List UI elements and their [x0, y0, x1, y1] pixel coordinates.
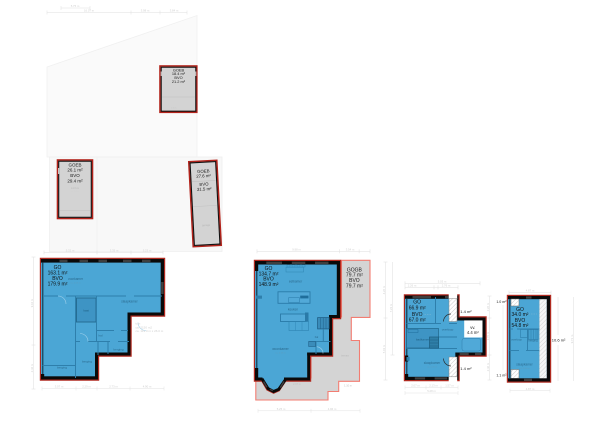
svg-text:1.1 m²: 1.1 m²: [496, 374, 507, 378]
svg-text:66.9 m²: 66.9 m²: [409, 305, 426, 311]
svg-text:3.07 m: 3.07 m: [55, 385, 64, 389]
svg-text:10.6 m²: 10.6 m²: [552, 338, 566, 343]
svg-text:tuinhuis: tuinhuis: [71, 187, 80, 190]
svg-text:1.57 m: 1.57 m: [445, 384, 454, 388]
svg-text:9.98 m: 9.98 m: [292, 247, 301, 251]
svg-text:overloop: overloop: [511, 338, 522, 342]
svg-text:79.7 m²: 79.7 m²: [346, 284, 363, 290]
svg-text:2.13 m: 2.13 m: [429, 384, 438, 388]
svg-text:4.87 m: 4.87 m: [526, 289, 535, 293]
svg-text:2.07 m: 2.07 m: [293, 382, 301, 386]
svg-text:ca. 6.0 m: ca. 6.0 m: [71, 191, 80, 193]
svg-text:2.46 m: 2.46 m: [486, 362, 490, 371]
svg-text:badkamer: badkamer: [416, 338, 429, 342]
svg-text:5.32 m: 5.32 m: [66, 249, 75, 253]
svg-text:slaapkamer: slaapkamer: [516, 363, 533, 367]
svg-text:5.75 m: 5.75 m: [71, 4, 80, 8]
svg-text:9.73 m: 9.73 m: [570, 334, 574, 343]
svg-text:eetkamer: eetkamer: [289, 280, 303, 284]
svg-text:31.5 m²: 31.5 m²: [197, 186, 212, 192]
svg-text:overloop: overloop: [442, 328, 454, 332]
svg-text:terras: terras: [341, 354, 349, 358]
svg-text:1.4 m²: 1.4 m²: [460, 309, 472, 314]
svg-text:2.73 m: 2.73 m: [109, 385, 118, 389]
svg-text:54.8 m²: 54.8 m²: [512, 323, 529, 329]
svg-text:slaapkamer: slaapkamer: [121, 300, 138, 304]
svg-text:hal: hal: [98, 334, 102, 338]
svg-text:ca. 119.0 m x 26.0 m: ca. 119.0 m x 26.0 m: [136, 329, 164, 333]
svg-text:berging: berging: [113, 348, 123, 352]
svg-text:2.07 m: 2.07 m: [411, 384, 420, 388]
svg-text:ca. 5.25 m: ca. 5.25 m: [275, 353, 285, 355]
svg-text:2.26 m: 2.26 m: [486, 302, 490, 311]
svg-text:voorkamer: voorkamer: [68, 277, 84, 281]
svg-text:3.98 m: 3.98 m: [141, 9, 150, 13]
svg-text:2.29 m: 2.29 m: [82, 385, 91, 389]
svg-text:ca. 4.20 m: ca. 4.20 m: [427, 367, 437, 369]
svg-text:kast: kast: [83, 309, 89, 313]
svg-text:3.84 m: 3.84 m: [170, 9, 179, 13]
svg-text:2.42 m: 2.42 m: [30, 363, 34, 372]
svg-text:5.25 m: 5.25 m: [277, 407, 286, 411]
svg-text:3.23 m: 3.23 m: [143, 249, 152, 253]
svg-text:1.10 m: 1.10 m: [344, 384, 352, 388]
svg-text:148.9 m²: 148.9 m²: [259, 282, 279, 288]
svg-text:3.35 m: 3.35 m: [110, 249, 119, 253]
svg-text:hal: hal: [315, 335, 319, 339]
svg-text:BVO: BVO: [70, 173, 80, 178]
svg-text:2.26 m: 2.26 m: [408, 284, 417, 288]
svg-text:slaapkamer: slaapkamer: [424, 361, 441, 365]
svg-text:29.4 m²: 29.4 m²: [67, 179, 83, 184]
svg-text:4.96 m: 4.96 m: [328, 407, 337, 411]
svg-text:16.07 m: 16.07 m: [84, 9, 95, 13]
svg-text:berging: berging: [57, 366, 67, 370]
svg-text:67.0 m²: 67.0 m²: [409, 318, 426, 324]
svg-text:2.76 m: 2.76 m: [442, 284, 451, 288]
svg-text:4.90 m: 4.90 m: [143, 385, 152, 389]
svg-text:7.23 m: 7.23 m: [389, 303, 393, 312]
svg-text:berging: berging: [528, 339, 538, 343]
svg-text:keuken: keuken: [288, 308, 299, 312]
svg-text:5.03 m: 5.03 m: [382, 344, 386, 353]
svg-text:2.2 m: 2.2 m: [171, 108, 177, 110]
svg-text:ca. 3.60 m: ca. 3.60 m: [519, 368, 529, 370]
svg-text:1.4 m²: 1.4 m²: [460, 366, 472, 371]
svg-text:9.62 m: 9.62 m: [30, 298, 34, 307]
svg-text:27.6 m²: 27.6 m²: [196, 173, 211, 179]
svg-text:3.70 m: 3.70 m: [486, 331, 490, 340]
svg-text:21.2 m²: 21.2 m²: [172, 79, 186, 84]
svg-text:26.1 m²: 26.1 m²: [67, 168, 83, 173]
svg-text:5.28 m: 5.28 m: [427, 389, 436, 393]
svg-text:garage: garage: [202, 223, 211, 227]
svg-text:4.26 m: 4.26 m: [382, 285, 386, 294]
svg-text:berging: berging: [82, 360, 92, 364]
svg-text:woonkamer: woonkamer: [272, 347, 289, 351]
svg-text:4.87 m: 4.87 m: [526, 387, 535, 391]
svg-text:1.0 m²: 1.0 m²: [496, 300, 507, 304]
svg-text:4.4 m²: 4.4 m²: [467, 330, 479, 335]
svg-text:179.9 m²: 179.9 m²: [48, 282, 68, 288]
svg-text:3.54 m: 3.54 m: [346, 247, 355, 251]
svg-text:ca. 4.05 m: ca. 4.05 m: [70, 283, 80, 285]
